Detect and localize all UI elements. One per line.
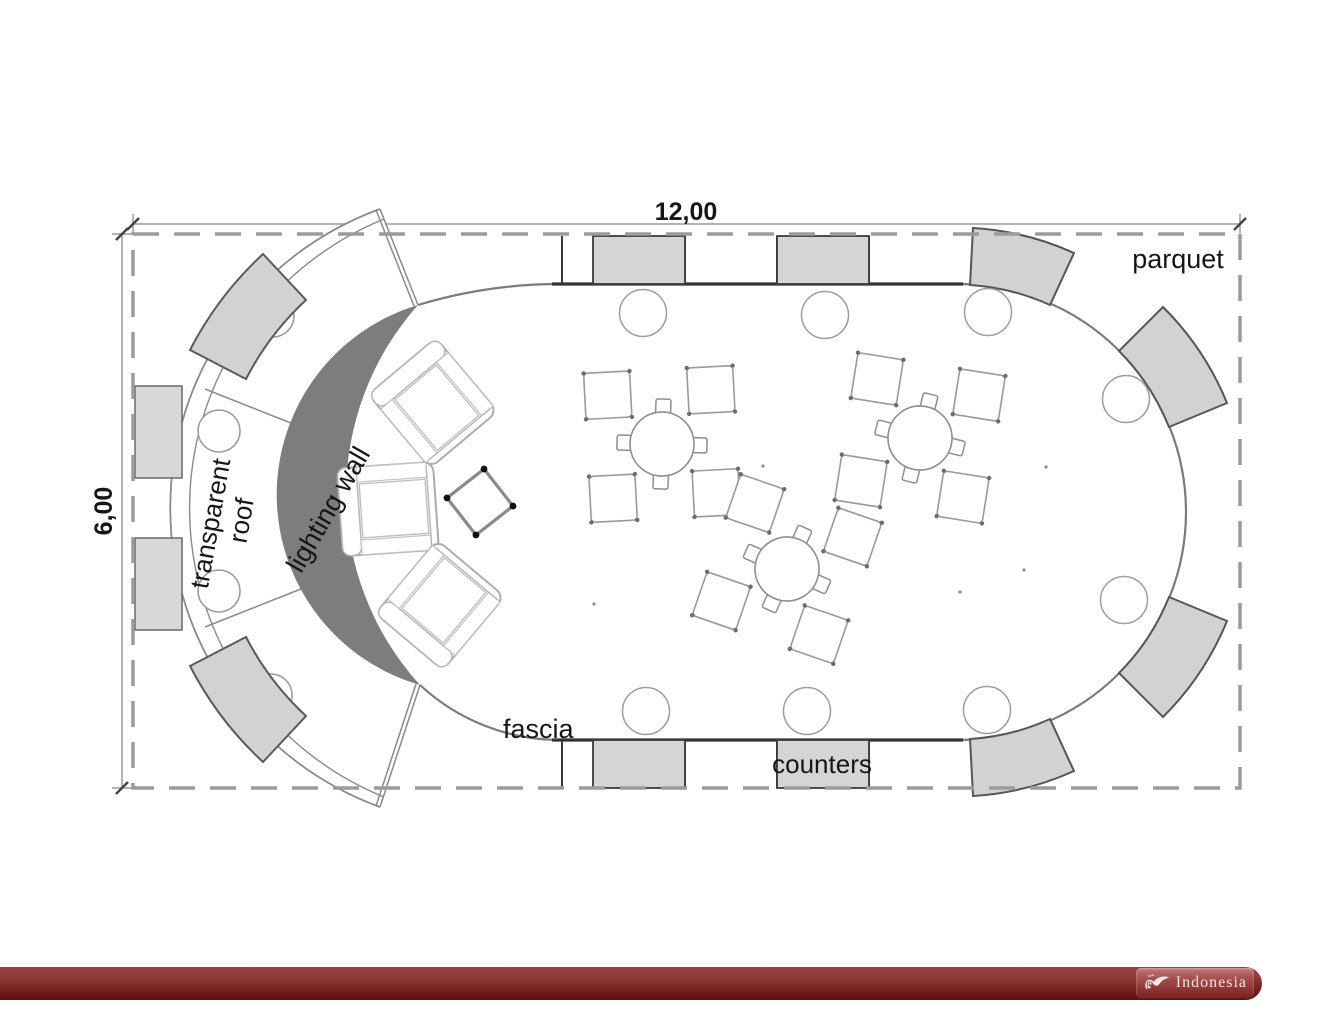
fascia-label: fascia — [503, 714, 575, 744]
garuda-flourish-icon — [1143, 970, 1171, 996]
footer-brand-text: Indonesia — [1176, 974, 1247, 992]
floor-plan-drawing: 12,00 6,00 — [0, 0, 1344, 1029]
counter-top-2 — [777, 236, 869, 284]
slide: 12,00 6,00 — [0, 0, 1344, 1029]
parquet-label: parquet — [1132, 244, 1224, 274]
footer-bar — [0, 967, 1262, 1000]
counter-bottom-1 — [593, 740, 685, 788]
main-stand-area — [418, 284, 1186, 740]
counters-label: counters — [772, 749, 872, 779]
footer-logo-plaque: Indonesia — [1136, 968, 1254, 998]
width-dimension-label: 12,00 — [655, 198, 718, 226]
counter-top-1 — [593, 236, 685, 284]
height-dimension-label: 6,00 — [90, 487, 118, 536]
